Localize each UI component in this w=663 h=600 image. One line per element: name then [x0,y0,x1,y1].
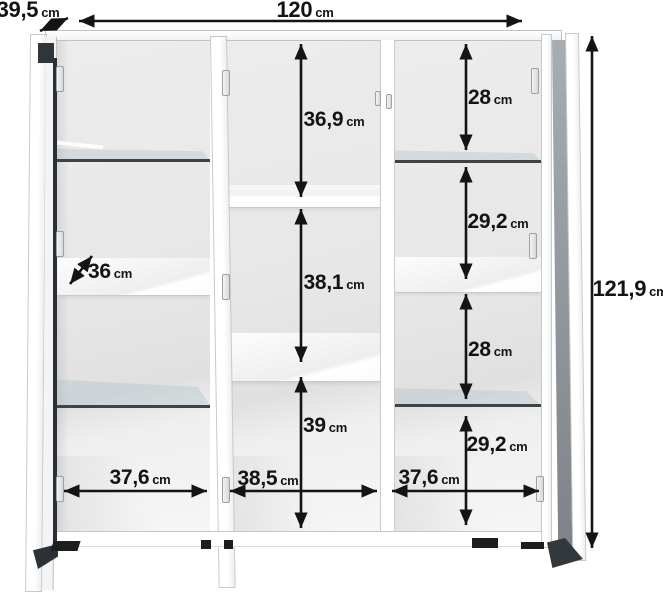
dim-label-left-inner-width: 37,6cm [110,466,171,490]
hinge-icon [529,233,537,259]
hinge-icon [386,94,392,109]
dim-value: 38,5 [238,467,278,490]
glass-shelf-edge [57,405,210,408]
left-compartment [57,40,210,531]
dim-value: 28 [468,86,491,109]
dim-unit: cm [114,266,132,281]
dim-label-right-upper-mid-height: 29,2cm [468,210,529,234]
dim-label-middle-inner-width: 38,5cm [238,467,299,491]
dim-unit: cm [510,216,528,231]
glass-shelf-edge [57,159,210,162]
dim-value: 28 [468,338,491,361]
dim-unit: cm [280,473,298,488]
cabinet-foot [472,538,498,548]
dim-value: 36 [88,260,111,283]
cabinet-foot [521,542,544,549]
dim-value: 29,2 [468,210,508,233]
dim-label-left-shelf-depth: 36cm [88,260,132,284]
dim-label-right-top-height: 28cm [468,86,512,110]
dim-unit: cm [315,5,333,20]
solid-shelf [227,185,380,208]
hinge-icon [56,66,64,92]
hinge-icon [222,274,230,300]
glass-shelf [395,147,541,161]
dim-label-middle-bottom-height: 39cm [303,414,347,438]
solid-shelf [227,333,380,382]
cabinet-foot [50,541,80,551]
hinge-icon [56,231,64,257]
glass-shelf-edge [395,160,541,163]
dim-unit: cm [152,472,170,487]
cabinet-bottom-panel [57,531,541,547]
dim-value: 39,5 [0,0,38,22]
vertical-divider-panel [380,40,395,532]
dim-unit: cm [346,277,364,292]
dim-unit: cm [494,92,512,107]
hinge-icon [375,91,381,106]
dim-unit: cm [649,284,663,299]
dim-value: 38,1 [304,271,344,294]
cabinet-foot [224,540,233,549]
glass-shelf [57,375,210,405]
dim-value: 120 [276,0,312,22]
solid-shelf [57,258,210,296]
dim-value: 37,6 [399,466,439,489]
dim-label-overall-width: 120cm [276,0,333,23]
right-compartment [395,40,541,531]
hinge-icon [56,476,64,502]
solid-shelf [395,257,541,293]
dim-unit: cm [494,344,512,359]
dim-label-overall-depth: 39,5cm [0,0,59,23]
hinge-icon [536,476,544,502]
glass-shelf-edge [395,404,541,407]
dim-value: 29,2 [467,433,507,456]
dim-unit: cm [346,114,364,129]
hinge-icon [531,68,539,94]
right-side-panel [541,34,552,548]
hinge-icon [222,477,230,503]
dim-value: 121,9 [593,276,647,301]
dim-label-middle-top-height: 36,9cm [304,108,365,132]
dim-unit: cm [441,472,459,487]
dim-unit: cm [329,420,347,435]
dim-label-right-inner-width: 37,6cm [399,466,460,490]
dim-label-middle-middle-height: 38,1cm [304,271,365,295]
dim-unit: cm [41,5,59,20]
furniture-dimension-diagram: 39,5cm 120cm 121,9cm 36,9cm 38,1cm 39cm … [0,0,663,600]
dim-unit: cm [509,439,527,454]
dim-value: 36,9 [304,108,344,131]
hinge-icon [222,70,230,96]
cabinet-foot [201,540,211,549]
cabinet-top-panel [45,30,562,41]
dim-value: 37,6 [110,466,150,489]
glass-shelf [395,384,541,405]
left-door-top-accent [38,43,54,63]
dim-label-overall-height: 121,9cm [593,276,663,302]
dim-label-right-bottom-height: 29,2cm [467,433,528,457]
dim-value: 39 [303,414,326,437]
dim-label-right-lower-mid-height: 28cm [468,338,512,362]
